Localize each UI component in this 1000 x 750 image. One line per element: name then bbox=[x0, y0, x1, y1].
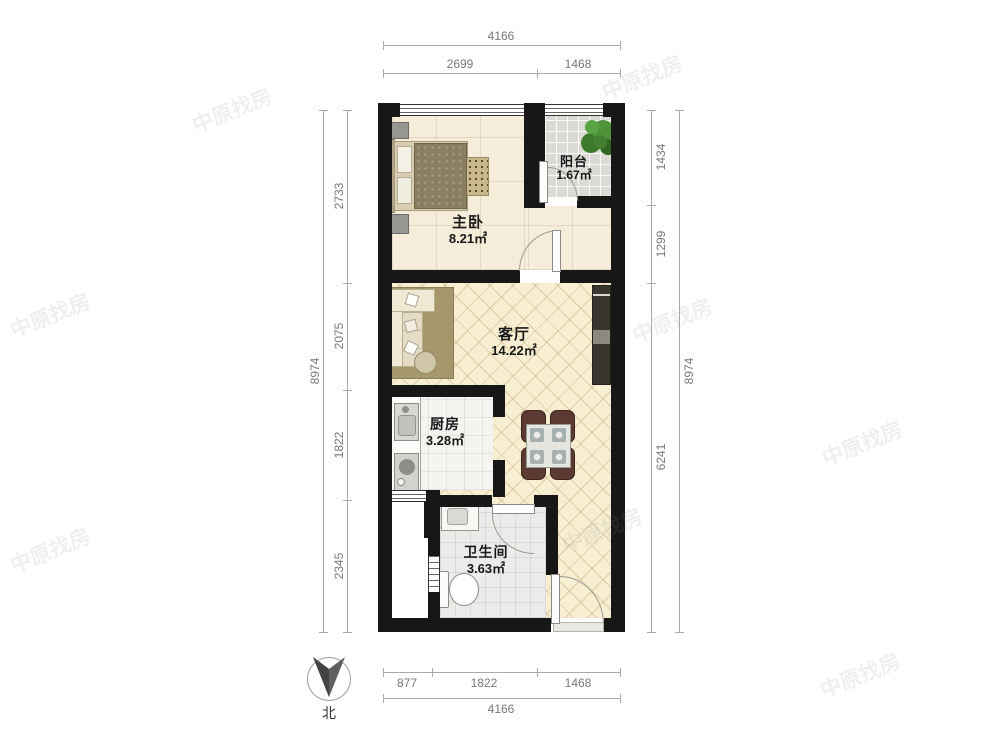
north-arrow-icon bbox=[311, 651, 347, 701]
dimension-label: 8974 bbox=[308, 331, 322, 411]
dimension-line bbox=[383, 698, 621, 699]
bed-blanket bbox=[414, 143, 467, 209]
dimension-tick bbox=[675, 110, 684, 111]
watermark: 中原找房 bbox=[627, 290, 716, 349]
dimension-label: 1299 bbox=[654, 204, 668, 284]
bedroom-bench bbox=[466, 157, 489, 196]
bathroom-sink-basin bbox=[447, 508, 468, 525]
dimension-label: 1822 bbox=[332, 405, 346, 485]
wall-top-left-corner bbox=[378, 103, 400, 117]
dimension-tick bbox=[620, 694, 621, 703]
dimension-tick bbox=[343, 500, 352, 501]
dimension-label: 2075 bbox=[332, 296, 346, 376]
kitchen-window bbox=[392, 490, 426, 502]
dimension-line bbox=[347, 110, 348, 632]
entry-door-leaf bbox=[551, 574, 560, 624]
dimension-tick bbox=[383, 41, 384, 50]
north-label: 北 bbox=[309, 703, 349, 719]
dimension-tick bbox=[319, 110, 328, 111]
wall-bedroom-bottom-left bbox=[392, 270, 520, 283]
dimension-label: 2345 bbox=[332, 526, 346, 606]
bedroom-label: 主卧 8.21㎡ bbox=[408, 214, 528, 246]
bedroom-door-leaf bbox=[552, 230, 561, 272]
watermark: 中原找房 bbox=[5, 520, 94, 579]
plate bbox=[552, 428, 566, 442]
dimension-label: 2733 bbox=[332, 156, 346, 236]
dimension-tick bbox=[647, 110, 656, 111]
kitchen-area: 3.28㎡ bbox=[395, 433, 495, 448]
wall-bathroom-right bbox=[546, 495, 558, 575]
watermark: 中原找房 bbox=[817, 413, 906, 472]
plate bbox=[552, 450, 566, 464]
nightstand bbox=[391, 122, 409, 139]
living-room-name: 客厅 bbox=[454, 326, 574, 343]
balcony-window bbox=[545, 104, 603, 116]
living-room-area: 14.22㎡ bbox=[454, 343, 574, 358]
living-room-label: 客厅 14.22㎡ bbox=[454, 326, 574, 358]
tv-cabinet bbox=[592, 285, 611, 385]
dimension-tick bbox=[343, 632, 352, 633]
dimension-label: 4166 bbox=[461, 29, 541, 43]
bedroom-window bbox=[400, 104, 524, 116]
dimension-line bbox=[383, 73, 621, 74]
balcony-label: 阳台 1.67㎡ bbox=[538, 155, 610, 182]
wall-kitchen-top bbox=[392, 385, 505, 397]
dimension-tick bbox=[383, 69, 384, 78]
wall-balcony-bottom bbox=[577, 196, 611, 208]
bathroom-label: 卫生间 3.63㎡ bbox=[426, 544, 546, 576]
dimension-line bbox=[679, 110, 680, 632]
bathroom-name: 卫生间 bbox=[426, 544, 546, 561]
bathroom-area: 3.63㎡ bbox=[426, 561, 546, 576]
wall-left bbox=[378, 103, 392, 632]
dimension-tick bbox=[343, 390, 352, 391]
balcony-name: 阳台 bbox=[538, 155, 610, 169]
watermark: 中原找房 bbox=[187, 80, 276, 139]
dimension-line bbox=[383, 672, 621, 673]
side-table bbox=[414, 351, 437, 374]
dimension-label: 1822 bbox=[444, 676, 524, 690]
wall-bottom-main bbox=[378, 618, 551, 632]
dimension-line bbox=[323, 110, 324, 632]
light-well bbox=[392, 502, 428, 618]
dimension-label: 2699 bbox=[420, 57, 500, 71]
wall-bathroom-top-left bbox=[436, 495, 492, 507]
stove-knob bbox=[397, 478, 405, 486]
dimension-tick bbox=[343, 283, 352, 284]
dimension-tick bbox=[620, 41, 621, 50]
dimension-tick bbox=[383, 694, 384, 703]
dimension-tick bbox=[620, 69, 621, 78]
stove-burner bbox=[399, 459, 415, 475]
dimension-label: 877 bbox=[367, 676, 447, 690]
toilet-bowl bbox=[449, 573, 479, 606]
bedroom-area: 8.21㎡ bbox=[408, 231, 528, 246]
dimension-label: 6241 bbox=[654, 417, 668, 497]
dimension-label: 1468 bbox=[538, 57, 618, 71]
kitchen-name: 厨房 bbox=[395, 416, 495, 433]
bed-pillow bbox=[397, 146, 412, 173]
watermark: 中原找房 bbox=[815, 645, 904, 704]
dimension-line bbox=[383, 45, 621, 46]
plate bbox=[530, 428, 544, 442]
wall-kitchen-right-stub-top bbox=[493, 397, 505, 417]
dimension-label: 4166 bbox=[461, 702, 541, 716]
bed-pillow bbox=[397, 177, 412, 204]
dimension-tick bbox=[675, 632, 684, 633]
faucet-icon bbox=[402, 406, 409, 413]
floor-plan: 主卧 8.21㎡ 阳台 1.67㎡ 客厅 14.22㎡ 厨房 3.28㎡ 卫生间… bbox=[0, 0, 1000, 750]
dimension-label: 1434 bbox=[654, 117, 668, 197]
wall-bottom-right-corner bbox=[604, 618, 625, 632]
nightstand bbox=[391, 214, 409, 234]
bathroom-door-leaf bbox=[492, 504, 535, 514]
dimension-label: 8974 bbox=[682, 331, 696, 411]
bedroom-name: 主卧 bbox=[408, 214, 528, 231]
wall-kitchen-right-stub-bottom bbox=[493, 460, 505, 497]
dimension-tick bbox=[319, 632, 328, 633]
wall-top-right-corner bbox=[603, 103, 625, 117]
wall-bedroom-bottom-right bbox=[560, 270, 611, 283]
plate bbox=[530, 450, 544, 464]
dimension-tick bbox=[647, 632, 656, 633]
dimension-tick bbox=[620, 668, 621, 677]
wall-right bbox=[611, 103, 625, 632]
dimension-line bbox=[651, 110, 652, 632]
kitchen-label: 厨房 3.28㎡ bbox=[395, 416, 495, 448]
balcony-area: 1.67㎡ bbox=[538, 169, 610, 182]
watermark: 中原找房 bbox=[5, 285, 94, 344]
dimension-label: 1468 bbox=[538, 676, 618, 690]
dimension-tick bbox=[343, 110, 352, 111]
